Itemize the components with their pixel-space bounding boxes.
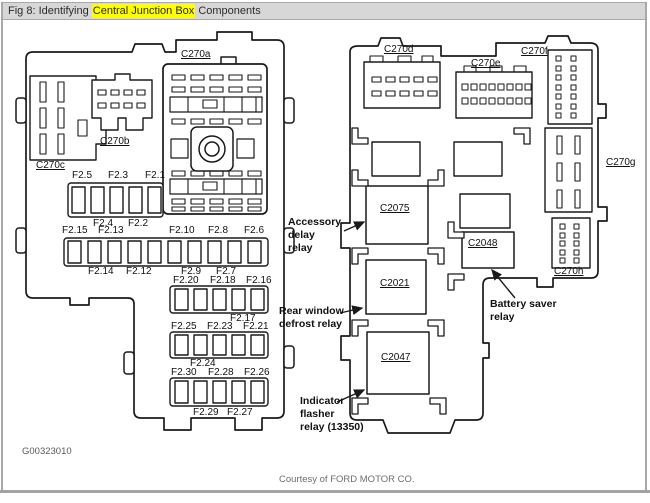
relay-socket-c2047 xyxy=(367,332,429,394)
fuse-label-f2-12: F2.12 xyxy=(126,267,152,277)
fuse-label-f2-14: F2.14 xyxy=(88,267,114,277)
fuse-label-f2-10: F2.10 xyxy=(169,226,195,236)
fuse-label-f2-20: F2.20 xyxy=(173,276,199,286)
figure-page: Fig 8: Identifying Central Junction Box … xyxy=(0,0,650,503)
relay-socket-c2075 xyxy=(366,186,428,244)
fuse-label-f2-13: F2.13 xyxy=(98,226,124,236)
relay-socket-top-left xyxy=(372,142,420,176)
fuse-label-f2-27: F2.27 xyxy=(227,408,253,418)
relay-socket-mid-right xyxy=(460,194,510,228)
fuse-label-f2-30: F2.30 xyxy=(171,368,197,378)
fuse-label-f2-28: F2.28 xyxy=(208,368,234,378)
connector-c270g xyxy=(545,128,592,212)
fuse-label-f2-26: F2.26 xyxy=(244,368,270,378)
connector-c270h xyxy=(552,218,590,268)
connector-label-c270f: C270f xyxy=(521,47,548,57)
page-border-bottom xyxy=(0,490,650,493)
fuse-label-f2-8: F2.8 xyxy=(208,226,228,236)
connector-label-c270c: C270c xyxy=(36,161,65,171)
fuse-label-f2-23: F2.23 xyxy=(207,322,233,332)
relay-label-c2021: C2021 xyxy=(380,279,409,289)
connector-label-c270e: C270e xyxy=(471,59,500,69)
fuse-label-f2-6: F2.6 xyxy=(244,226,264,236)
annotation-indicator-flasher-relay: Indicator flasher relay (13350) xyxy=(300,395,364,434)
relay-socket-top-right xyxy=(454,142,502,176)
connector-label-c270d: C270d xyxy=(384,45,413,55)
connector-c270f xyxy=(548,50,592,124)
fuse-label-f2-15: F2.15 xyxy=(62,226,88,236)
fuse-label-f2-2: F2.2 xyxy=(128,219,148,229)
relay-label-c2047: C2047 xyxy=(381,353,410,363)
connector-c270e xyxy=(456,66,532,118)
connector-label-c270a: C270a xyxy=(181,50,210,60)
fuse-row-1 xyxy=(68,183,163,217)
relay-label-c2075: C2075 xyxy=(380,204,409,214)
fuse-row-3 xyxy=(170,286,268,313)
connector-label-c270g: C270g xyxy=(606,158,635,168)
fuse-label-f2-25: F2.25 xyxy=(171,322,197,332)
page-border-left xyxy=(1,2,3,492)
relay-label-c2048: C2048 xyxy=(468,239,497,249)
fuse-label-f2-18: F2.18 xyxy=(210,276,236,286)
fuse-row-2 xyxy=(64,238,268,266)
connector-label-c270h: C270h xyxy=(554,267,583,277)
page-border-right xyxy=(645,2,647,492)
connector-c270a xyxy=(163,57,267,214)
connector-c270d xyxy=(364,56,440,108)
annotation-battery-saver-relay: Battery saver relay xyxy=(490,298,557,324)
annotation-rear-window-defrost-relay: Rear window defrost relay xyxy=(279,305,344,331)
fuse-row-5 xyxy=(170,378,268,406)
fuse-label-f2-3: F2.3 xyxy=(108,171,128,181)
fuse-label-f2-5: F2.5 xyxy=(72,171,92,181)
fuse-label-f2-29: F2.29 xyxy=(193,408,219,418)
courtesy-credit: Courtesy of FORD MOTOR CO. xyxy=(279,474,414,485)
figure-code: G00323010 xyxy=(22,446,72,457)
connector-label-c270b: C270b xyxy=(100,137,129,147)
annotation-accessory-delay-relay: Accessory delay relay xyxy=(288,216,341,255)
fuse-label-f2-21: F2.21 xyxy=(243,322,269,332)
fuse-label-f2-1: F2.1 xyxy=(145,171,165,181)
fuse-label-f2-16: F2.16 xyxy=(246,276,272,286)
fuse-row-4 xyxy=(170,332,268,358)
